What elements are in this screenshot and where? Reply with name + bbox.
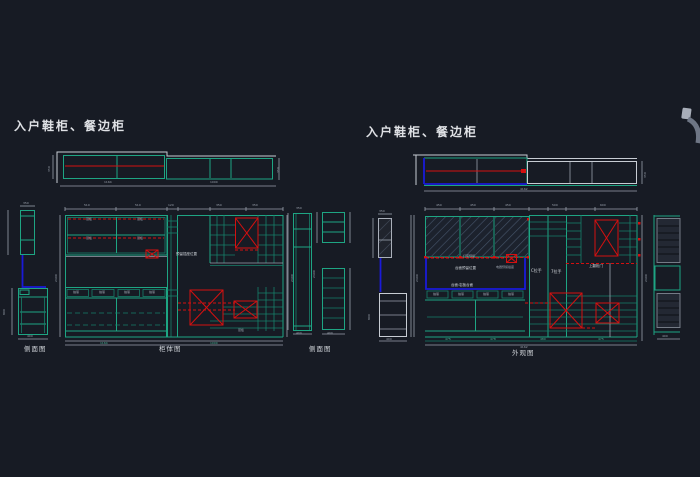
handle-note-c: C拉手 <box>531 269 542 273</box>
dim-text: 400 <box>386 338 392 341</box>
dim-text: 800 <box>3 309 6 315</box>
dim-text: 350 <box>48 166 51 172</box>
dim-text: 510 <box>84 204 90 207</box>
socket-note: 预留插座位置 <box>176 253 197 257</box>
dim-text: 510 <box>135 204 141 207</box>
shelf-label: 层板 <box>137 218 143 221</box>
dim-text: 400 <box>662 335 668 338</box>
dim-text: 350 <box>216 204 222 207</box>
caption-exterior-view: 外观图 <box>512 350 535 357</box>
dim-text: 2400 <box>291 274 294 282</box>
dim-text: 350 <box>379 210 385 213</box>
right-set-side-view <box>373 214 414 341</box>
drawer-label: 抽屉 <box>483 293 489 296</box>
dim-text: 450 <box>505 204 511 207</box>
dim-text: 350 <box>277 167 280 173</box>
drawer-label: 抽屉 <box>149 291 155 294</box>
dim-text: 350 <box>644 172 647 178</box>
drawer-label: 抽屉 <box>458 293 464 296</box>
handle-note-7: 7拉手 <box>551 270 562 274</box>
shelf-label: 层板 <box>86 218 92 221</box>
dim-text: 2400 <box>55 274 58 282</box>
dim-text: 2400 <box>313 270 316 278</box>
caption-side-view-2: 侧面图 <box>309 346 332 353</box>
left-plan-view <box>53 152 279 186</box>
counter-note: 台面预留位置 <box>455 267 476 271</box>
dim-text: 400 <box>27 335 33 338</box>
dim-text: 800 <box>368 314 371 320</box>
drawer-label: 抽屉 <box>124 291 130 294</box>
dim-text: 350 <box>296 207 302 210</box>
dim-text: 4162 <box>520 188 528 191</box>
dim-text: 120 <box>168 204 174 207</box>
dim-text: 1000 <box>210 181 218 184</box>
shelf-label: 层板 <box>238 329 244 332</box>
dim-text: 450 <box>436 204 442 207</box>
dim-text: 1000 <box>210 342 218 345</box>
dim-text: 350 <box>252 204 258 207</box>
dim-text: 500 <box>552 204 558 207</box>
dim-text: 600 <box>600 204 606 207</box>
dim-text: 480 <box>540 338 546 341</box>
dim-text: 1164 <box>100 342 108 345</box>
right-drawing-title: 入户鞋柜、餐边柜 <box>366 126 478 138</box>
drawer-label: 抽屉 <box>99 291 105 294</box>
appliance-socket-note: 电器预留插座 <box>496 266 514 269</box>
dim-text: 400 <box>327 332 333 335</box>
far-right-side-view <box>654 215 680 339</box>
dim-text: 478 <box>490 338 496 341</box>
shelf-label: 层板 <box>137 237 143 240</box>
left-drawing-title: 入户鞋柜、餐边柜 <box>14 120 126 132</box>
dim-text: 1164 <box>104 181 112 184</box>
cad-viewport[interactable]: 入户鞋柜、餐边柜 入户鞋柜、餐边柜 侧面图 柜体图 侧面图 外观图 层板 层板 … <box>0 0 700 477</box>
drawer-label: 抽屉 <box>433 293 439 296</box>
dim-text: 350 <box>23 202 29 205</box>
drawer-label: 抽屉 <box>73 291 79 294</box>
cursor-arc <box>681 107 698 143</box>
dim-text: 475 <box>598 338 604 341</box>
left-set-right-side-views <box>288 212 350 334</box>
left-side-view <box>8 206 48 339</box>
dim-text: 2400 <box>416 274 419 282</box>
counter-material-note: 台面:岩板台面 <box>451 284 473 288</box>
dim-text: 475 <box>445 338 451 341</box>
cad-linework <box>0 0 700 477</box>
shelf-label: 层板 <box>86 237 92 240</box>
drawer-label: 抽屉 <box>508 293 514 296</box>
dim-text: 4162 <box>520 346 528 349</box>
dim-text: 2164 <box>166 346 174 349</box>
light-strip-note: 灯带预留 <box>463 255 475 258</box>
right-elevation <box>424 207 642 345</box>
dim-text: 450 <box>470 204 476 207</box>
dim-text: 2400 <box>645 274 648 282</box>
left-elevation <box>60 207 287 345</box>
caption-side-view: 侧面图 <box>24 346 47 353</box>
dim-text: 400 <box>296 332 302 335</box>
right-plan-view <box>413 155 642 191</box>
flip-door-note: 上翻柜门 <box>589 265 603 269</box>
